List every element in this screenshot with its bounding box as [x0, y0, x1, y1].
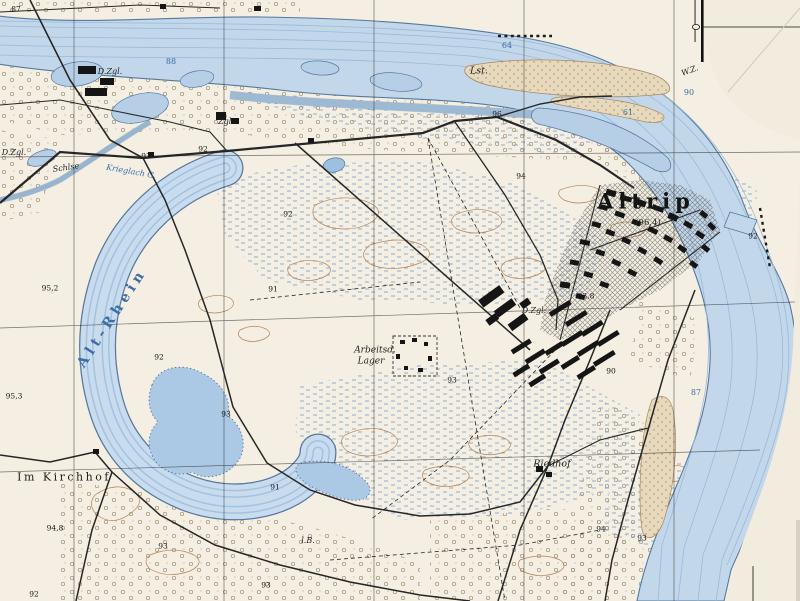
- map-svg: [0, 0, 800, 601]
- sheet-border-line: [701, 0, 704, 62]
- map-canvas: Altrip(96,4)Alt-RheinArbeitsd.LagerIm Ki…: [0, 0, 800, 601]
